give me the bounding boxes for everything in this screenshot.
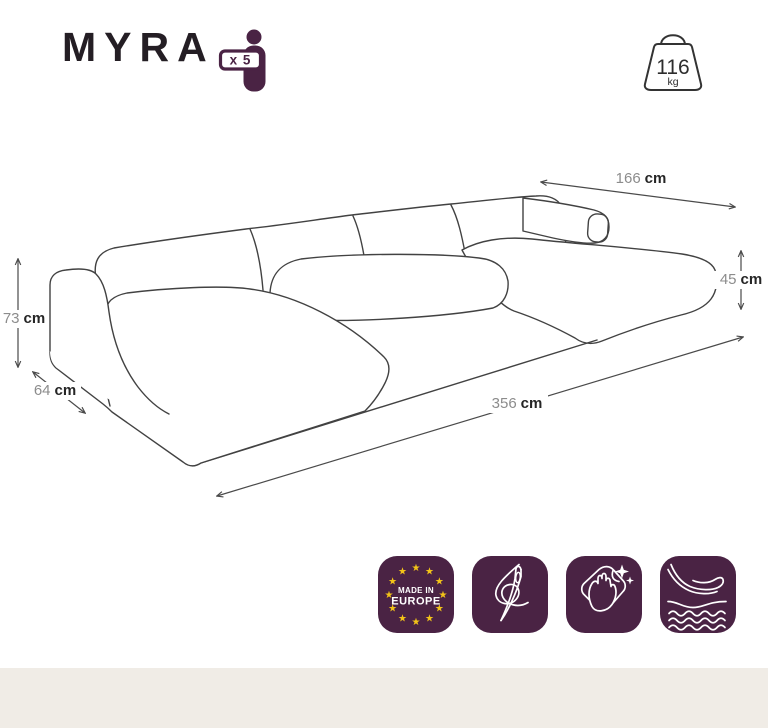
dimension-unit: cm: [645, 170, 667, 187]
svg-text:★: ★: [425, 613, 434, 624]
dimension-value: 356: [492, 395, 517, 412]
svg-text:★: ★: [388, 577, 397, 588]
hand-cloth-sparkle-icon: [566, 556, 642, 633]
dimension-unit: cm: [24, 310, 46, 327]
badge-sewing: [472, 556, 548, 633]
sofa-shape: [50, 196, 717, 466]
svg-text:★: ★: [425, 567, 434, 578]
dimension-label-total-width: 356cm: [486, 395, 548, 413]
dimension-label-total-height: 73cm: [0, 310, 48, 328]
svg-text:★: ★: [412, 563, 421, 574]
hand-foam-waves-icon: [660, 556, 736, 633]
dimension-unit: cm: [55, 382, 77, 399]
svg-text:★: ★: [412, 617, 421, 628]
badge-made-in-europe: ★ ★ ★ ★ ★ ★ ★ ★ ★ ★ ★ ★ MADE IN EUROPE: [378, 556, 454, 633]
dimension-unit: cm: [741, 271, 763, 288]
needle-thread-icon: [472, 556, 548, 633]
badge-comfort: [660, 556, 736, 633]
dimension-unit: cm: [521, 395, 543, 412]
dimension-value: 45: [720, 271, 737, 288]
dimension-value: 64: [34, 382, 51, 399]
made-in-label: MADE IN: [398, 586, 434, 595]
dimension-label-chaise-depth: 166cm: [598, 170, 684, 188]
dimension-label-arm-depth: 64cm: [29, 382, 81, 400]
svg-text:★: ★: [398, 613, 407, 624]
badge-easy-clean: [566, 556, 642, 633]
eu-stars-icon: ★ ★ ★ ★ ★ ★ ★ ★ ★ ★ ★ ★ MADE IN EUROPE: [378, 556, 454, 633]
svg-text:★: ★: [398, 567, 407, 578]
svg-text:★: ★: [435, 577, 444, 588]
europe-label: EUROPE: [391, 596, 440, 608]
product-dimension-sheet: MYRA x 5 116 kg: [0, 0, 768, 728]
dimension-label-seat-height: 45cm: [714, 271, 768, 289]
dimension-value: 166: [616, 170, 641, 187]
footer-bar: sía HOME: [0, 668, 768, 728]
dimension-value: 73: [3, 310, 20, 327]
